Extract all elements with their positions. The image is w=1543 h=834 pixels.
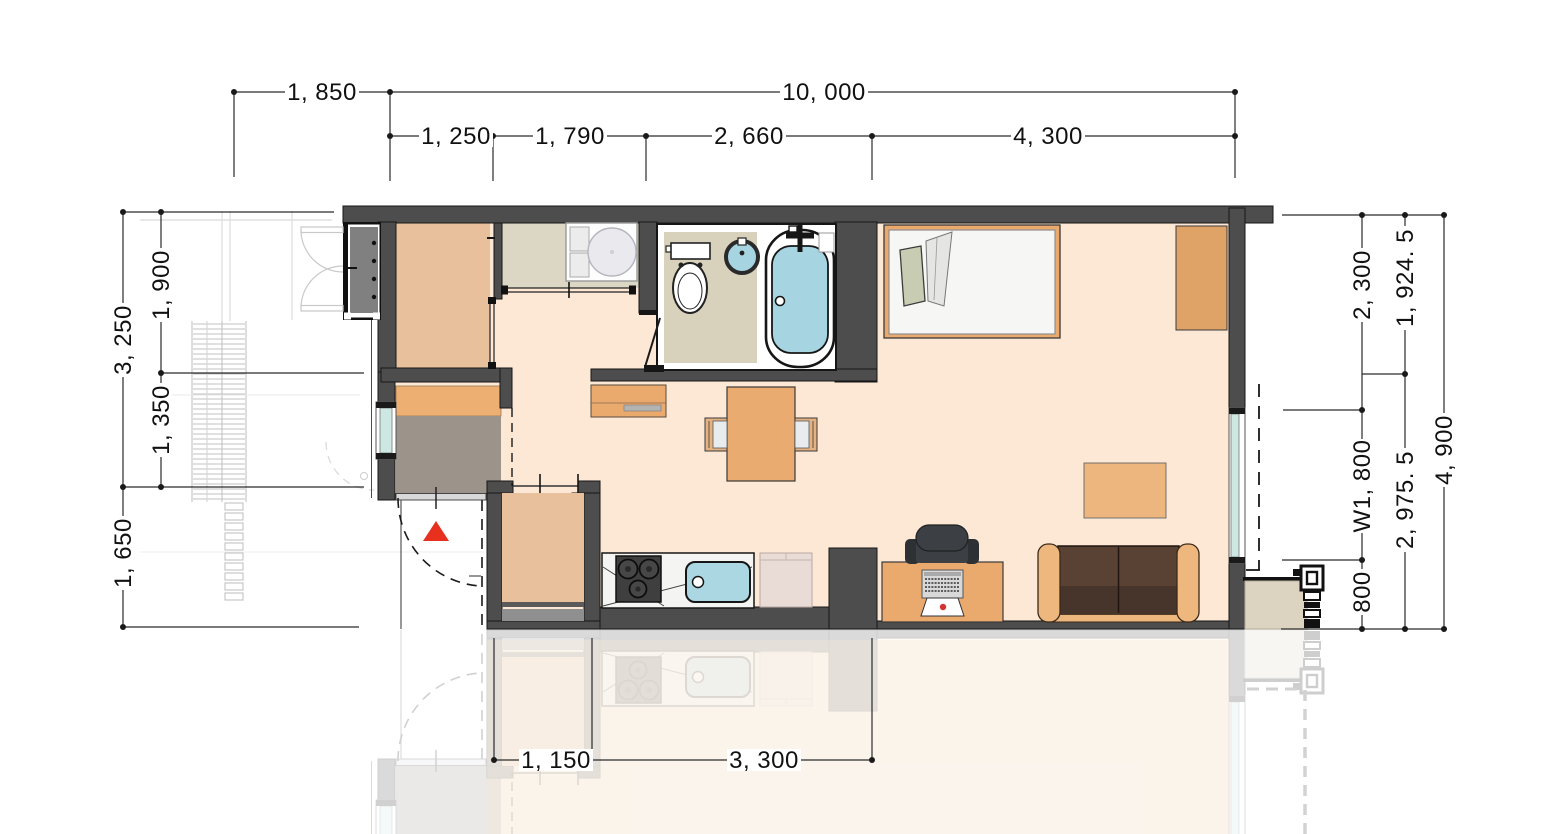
svg-text:3, 250: 3, 250: [110, 305, 137, 375]
svg-text:2, 660: 2, 660: [714, 123, 784, 150]
svg-text:1, 650: 1, 650: [110, 518, 137, 588]
svg-text:10, 000: 10, 000: [782, 79, 866, 106]
svg-text:4, 900: 4, 900: [1431, 415, 1458, 485]
svg-text:1, 350: 1, 350: [148, 385, 175, 455]
svg-text:1, 150: 1, 150: [521, 747, 591, 774]
svg-text:2, 300: 2, 300: [1349, 250, 1376, 320]
svg-text:4, 300: 4, 300: [1013, 123, 1083, 150]
svg-text:1, 850: 1, 850: [287, 79, 357, 106]
svg-text:1, 790: 1, 790: [535, 123, 605, 150]
svg-text:2, 975. 5: 2, 975. 5: [1392, 451, 1419, 549]
svg-text:1, 900: 1, 900: [148, 250, 175, 320]
svg-text:1, 924. 5: 1, 924. 5: [1392, 229, 1419, 327]
svg-text:3, 300: 3, 300: [729, 747, 799, 774]
svg-text:W1, 800: W1, 800: [1349, 440, 1376, 533]
svg-text:800: 800: [1349, 571, 1376, 613]
svg-text:1, 250: 1, 250: [421, 123, 491, 150]
